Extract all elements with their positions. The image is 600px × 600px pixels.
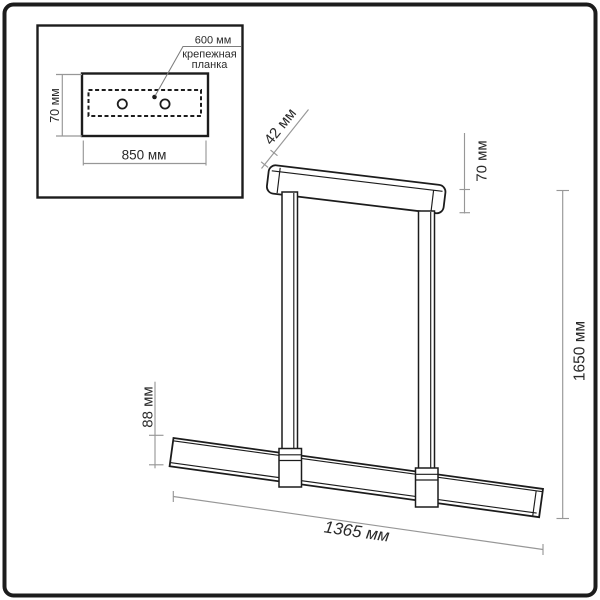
- inset-width-dimension: 850 мм: [83, 141, 206, 166]
- leader-dot: [152, 95, 157, 100]
- rod-body: [282, 192, 298, 450]
- connector-right: [416, 468, 439, 507]
- canopy-height-label: 70 мм: [474, 140, 491, 181]
- canopy-depth-dimension: 42 мм: [261, 105, 309, 168]
- connector-left: [279, 449, 302, 488]
- diagram-canvas: 600 мм крепежная планка 70 мм 850 мм: [0, 0, 600, 600]
- suspension-rod-left: [282, 192, 298, 450]
- lamp-drawing: [170, 165, 543, 518]
- canopy-height-dimension: 70 мм: [460, 133, 491, 214]
- rod-body: [419, 211, 435, 469]
- dim-tick: [271, 150, 278, 156]
- bar-height-label: 88 мм: [140, 386, 157, 427]
- bar-height-dimension: 88 мм: [140, 382, 164, 469]
- light-bar: [170, 438, 543, 517]
- inset-height-dimension: 70 мм: [48, 75, 82, 137]
- plate-width-label: 850 мм: [122, 148, 167, 163]
- suspension-height-dimension: 1650 мм: [557, 191, 589, 520]
- dim-tick: [261, 162, 268, 168]
- canopy-top-view: [82, 74, 208, 137]
- lamp-dimension-diagram: 600 мм крепежная планка 70 мм 850 мм: [0, 0, 600, 600]
- bracket-length-label: 600 мм: [195, 35, 232, 47]
- bracket-name-line2: планка: [192, 59, 229, 71]
- plate-height-label: 70 мм: [48, 88, 62, 123]
- suspension-rod-right: [419, 211, 435, 469]
- suspension-height-label: 1650 мм: [572, 321, 589, 381]
- light-bar-body: [170, 438, 543, 517]
- mounting-plate-inset: 600 мм крепежная планка 70 мм 850 мм: [38, 26, 243, 198]
- bar-length-label: 1365 мм: [323, 517, 391, 545]
